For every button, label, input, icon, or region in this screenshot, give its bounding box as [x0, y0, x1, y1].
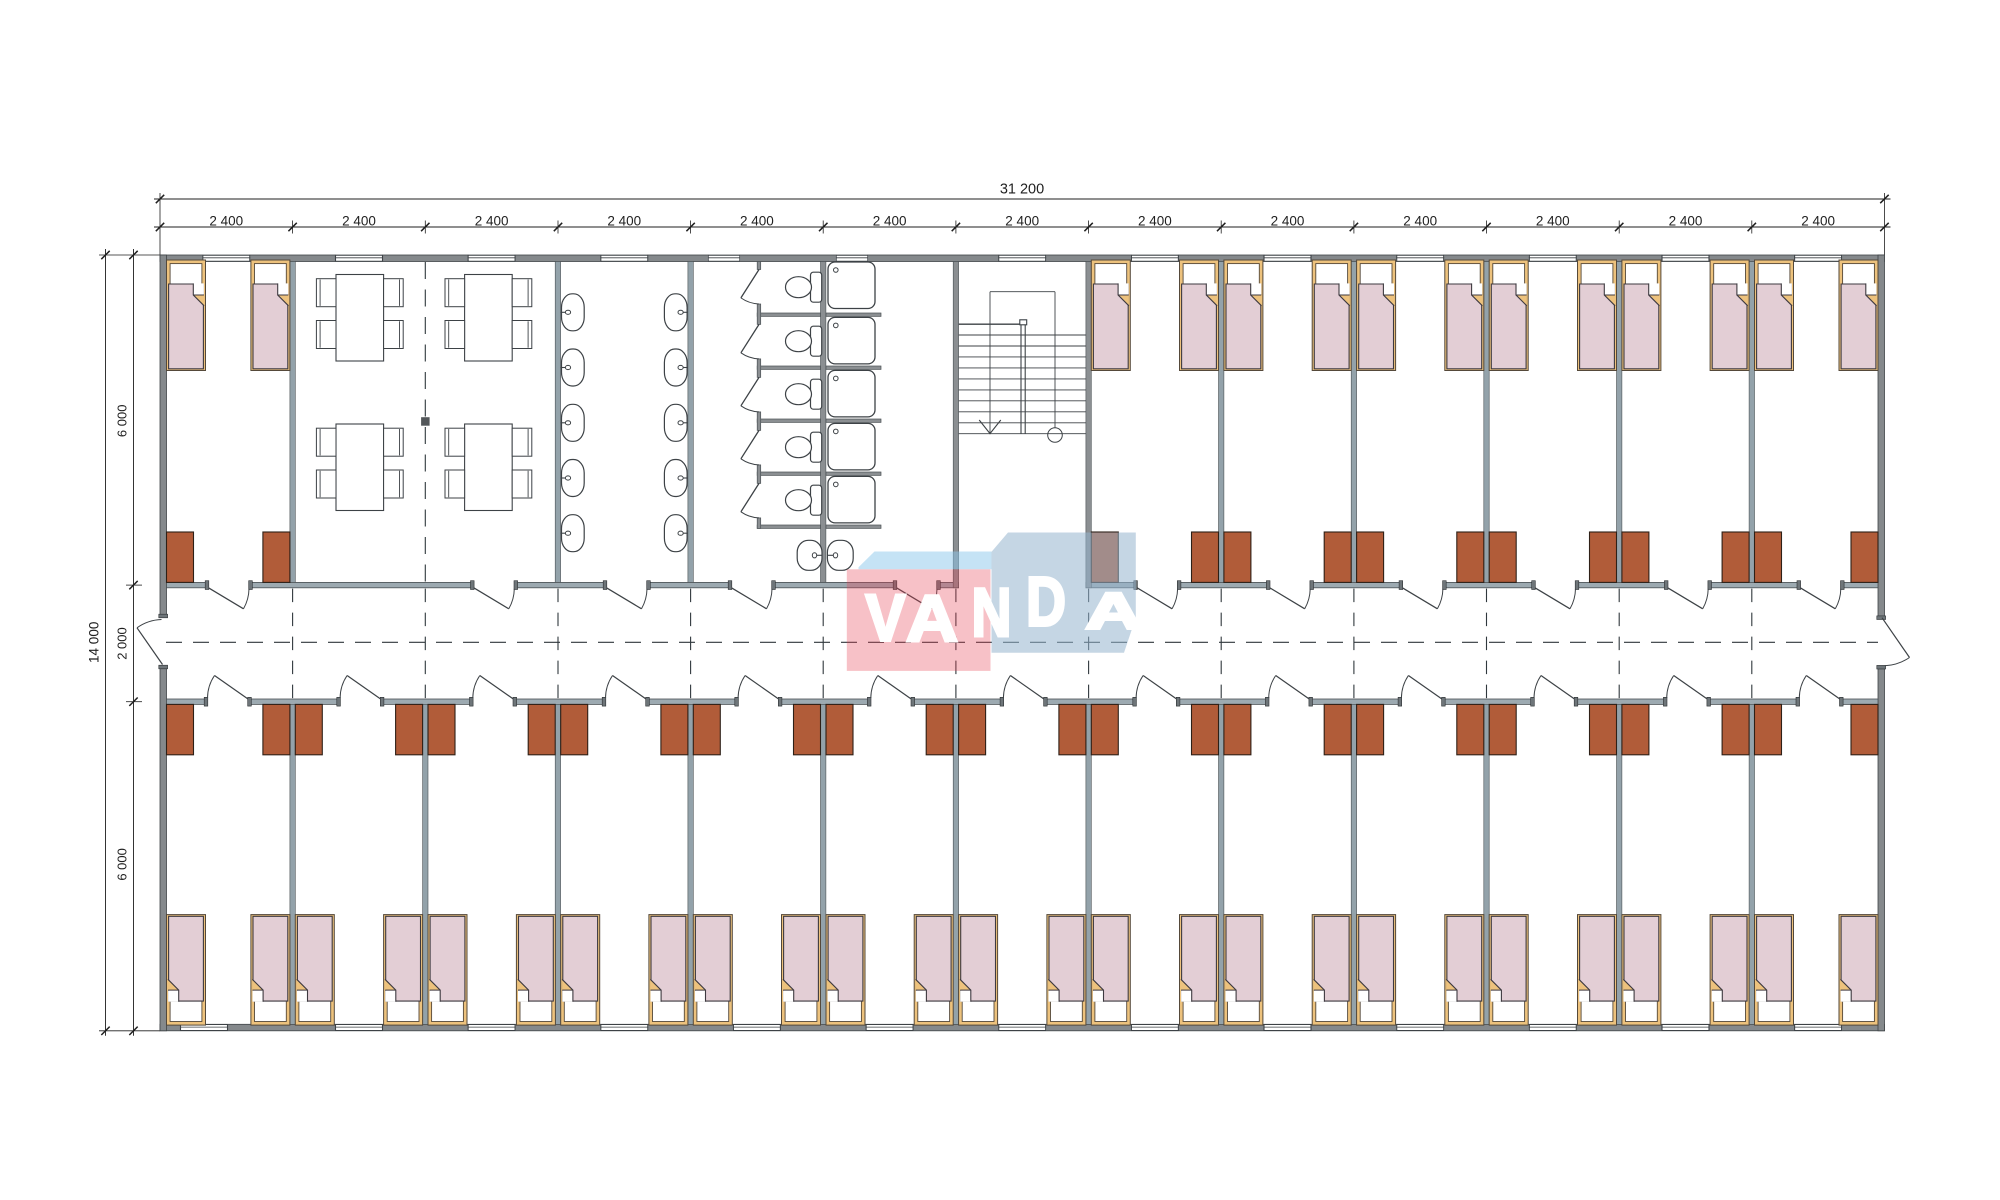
- svg-text:2 400: 2 400: [1403, 213, 1437, 228]
- svg-text:A: A: [906, 581, 958, 655]
- svg-text:2 400: 2 400: [475, 213, 509, 228]
- svg-text:2 400: 2 400: [1801, 213, 1835, 228]
- svg-text:2 400: 2 400: [1005, 213, 1039, 228]
- svg-text:14 000: 14 000: [87, 622, 102, 663]
- svg-text:2 400: 2 400: [342, 213, 376, 228]
- svg-text:2 400: 2 400: [873, 213, 907, 228]
- svg-text:2 400: 2 400: [1669, 213, 1703, 228]
- svg-text:A: A: [1086, 582, 1142, 639]
- svg-text:N: N: [972, 574, 1012, 651]
- svg-text:2 000: 2 000: [115, 627, 130, 660]
- svg-text:2 400: 2 400: [607, 213, 641, 228]
- svg-text:2 400: 2 400: [1138, 213, 1172, 228]
- svg-text:2 400: 2 400: [209, 213, 243, 228]
- svg-text:31 200: 31 200: [1000, 182, 1044, 198]
- svg-text:2 400: 2 400: [1536, 213, 1570, 228]
- svg-text:2 400: 2 400: [740, 213, 774, 228]
- svg-text:V: V: [866, 581, 906, 655]
- svg-text:D: D: [1026, 563, 1066, 641]
- svg-text:6 000: 6 000: [115, 405, 130, 438]
- svg-text:2 400: 2 400: [1271, 213, 1305, 228]
- svg-text:6 000: 6 000: [115, 848, 130, 881]
